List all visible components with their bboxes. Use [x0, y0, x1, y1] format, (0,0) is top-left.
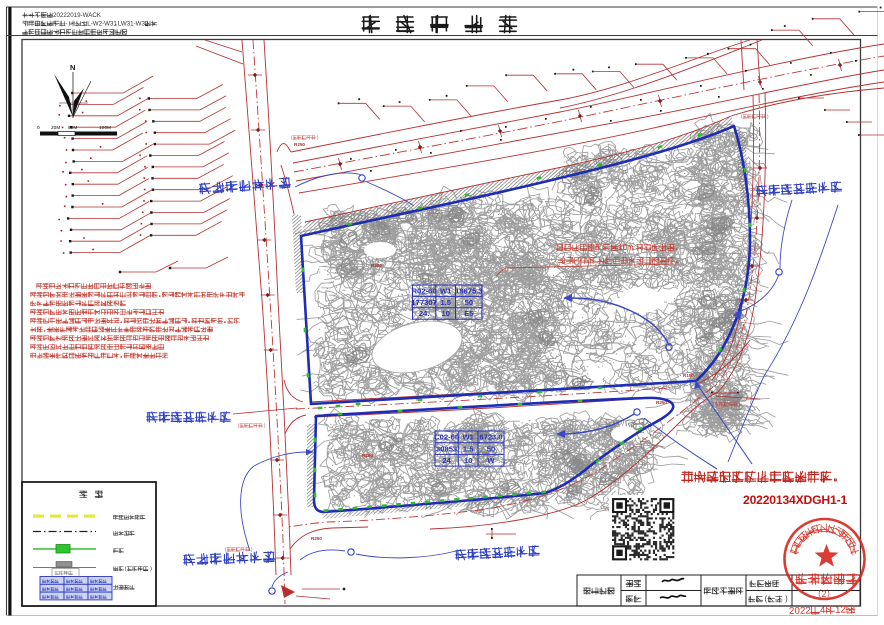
svg-text:R250: R250 [294, 142, 305, 147]
svg-text:R150: R150 [683, 373, 694, 378]
svg-text:W1: W1 [440, 286, 452, 295]
svg-text:10m: 10m [618, 243, 633, 252]
svg-text:50: 50 [487, 444, 495, 453]
svg-text:24: 24 [442, 456, 451, 465]
svg-text:20220134XDGH1-1: 20220134XDGH1-1 [743, 493, 847, 507]
svg-text:177307: 177307 [411, 298, 436, 307]
svg-text:2022: 2022 [789, 605, 811, 617]
svg-text:W1: W1 [463, 433, 475, 442]
svg-text:6723.0: 6723.0 [479, 433, 502, 442]
svg-text:-: - [65, 21, 67, 28]
svg-text:R250: R250 [371, 263, 382, 268]
svg-text:R250: R250 [311, 536, 322, 541]
svg-text:10: 10 [464, 456, 472, 465]
svg-text:C02-60: C02-60 [434, 433, 459, 442]
svg-text:R250: R250 [656, 400, 667, 405]
svg-text:W: W [487, 456, 495, 465]
svg-text:1.5: 1.5 [463, 444, 474, 453]
svg-text:24.: 24. [419, 309, 430, 318]
svg-text:（2）: （2） [812, 589, 835, 599]
svg-text:4: 4 [820, 605, 826, 616]
svg-text:L-W2-W31: L-W2-W31 [87, 21, 117, 28]
svg-text:50M: 50M [68, 125, 77, 131]
svg-text:N: N [70, 63, 75, 72]
svg-text:30853: 30853 [436, 444, 457, 453]
svg-text:100M: 100M [99, 125, 111, 131]
svg-text:R02-60: R02-60 [412, 286, 437, 295]
svg-text:0: 0 [37, 125, 40, 131]
svg-text:E5: E5 [464, 309, 474, 318]
svg-text:20222019-WACK: 20222019-WACK [53, 12, 102, 19]
svg-text:18675.3: 18675.3 [455, 286, 482, 295]
svg-text:12: 12 [835, 605, 846, 616]
svg-text:1.5: 1.5 [440, 298, 451, 307]
svg-text:20M: 20M [51, 125, 60, 131]
svg-text:50: 50 [465, 298, 473, 307]
svg-text:R250: R250 [362, 453, 373, 458]
svg-text:10: 10 [441, 309, 449, 318]
svg-text:LW31-W32: LW31-W32 [118, 21, 149, 28]
